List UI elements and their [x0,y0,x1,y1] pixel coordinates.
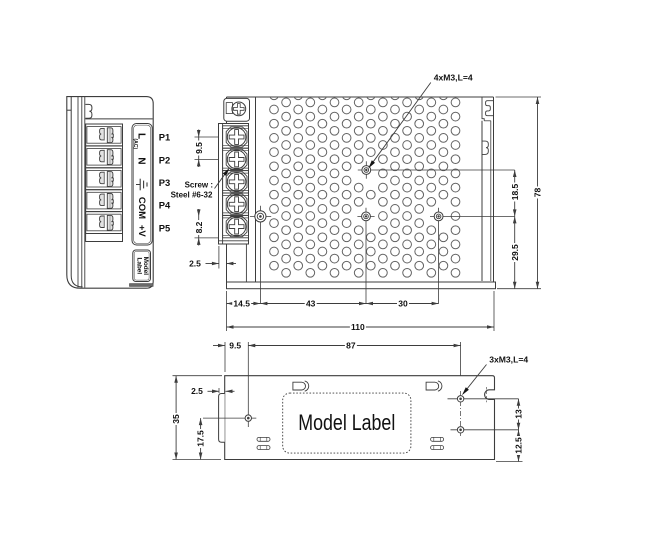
svg-text:2.5: 2.5 [191,386,203,396]
svg-text:4xM3,L=4: 4xM3,L=4 [434,73,473,83]
svg-text:17.5: 17.5 [196,430,206,447]
svg-text:78: 78 [533,188,543,198]
svg-text:(AC): (AC) [132,139,138,150]
svg-text:29.5: 29.5 [510,244,520,261]
svg-text:Model Label: Model Label [298,410,395,435]
svg-text:9.5: 9.5 [194,142,204,154]
svg-text:P1: P1 [159,132,170,143]
svg-text:P2: P2 [159,154,170,165]
svg-text:110: 110 [351,322,365,332]
svg-text:Screw :: Screw : [185,181,213,190]
svg-text:P5: P5 [159,222,170,233]
svg-text:35: 35 [171,414,181,424]
svg-text:18.5: 18.5 [510,183,520,200]
svg-text:+V: +V [136,225,147,238]
svg-text:30: 30 [398,299,408,309]
svg-text:13: 13 [514,409,524,419]
svg-text:14.5: 14.5 [233,299,250,309]
svg-text:N: N [136,157,147,164]
svg-text:8.2: 8.2 [194,221,204,233]
svg-text:Label: Label [135,257,142,274]
svg-text:87: 87 [346,341,356,351]
svg-text:9.5: 9.5 [229,341,241,351]
svg-text:43: 43 [306,299,316,309]
svg-text:12.5: 12.5 [514,437,524,454]
svg-text:COM: COM [136,197,147,219]
svg-text:Steel #6-32: Steel #6-32 [171,191,213,200]
svg-text:P3: P3 [159,177,170,188]
svg-text:2.5: 2.5 [189,258,201,268]
svg-text:P4: P4 [159,200,171,211]
svg-text:3xM3,L=4: 3xM3,L=4 [489,354,528,364]
